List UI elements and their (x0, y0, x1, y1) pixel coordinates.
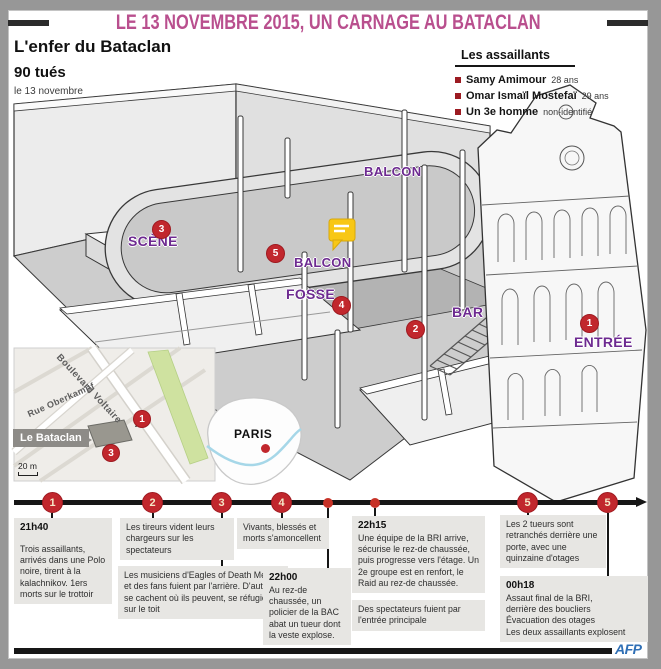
timeline-event-21h40: 21h40 Trois assaillants, arrivés dans un… (14, 518, 112, 604)
banner-rule-right (607, 20, 648, 26)
timeline-arrow-icon (636, 497, 647, 507)
venue-marker-entree: 1 (580, 314, 599, 333)
death-toll-date: le 13 novembre (14, 86, 83, 97)
title-banner: LE 13 NOVEMBRE 2015, UN CARNAGE AU BATAC… (8, 10, 648, 36)
event-text: Une équipe de la BRI arrive, sécurise le… (358, 533, 479, 589)
content-layer: LE 13 NOVEMBRE 2015, UN CARNAGE AU BATAC… (0, 0, 661, 669)
map-marker-entree: 1 (133, 410, 151, 428)
timeline-point-4: 4 (271, 492, 292, 513)
bullet-square-icon (455, 109, 461, 115)
timeline-event-22h15: 22h15 Une équipe de la BRI arrive, sécur… (352, 516, 485, 593)
assailant-item: Un 3e homme non-identifié (455, 106, 650, 118)
timeline-event-vivants: Vivants, blessés et morts s'amoncellent (237, 518, 329, 549)
timeline-point-5a: 5 (517, 492, 538, 513)
timeline-point-2: 2 (142, 492, 163, 513)
label-balcon-top: BALCON (364, 164, 421, 179)
assailant-item: Samy Amimour 28 ans (455, 74, 650, 86)
venue-marker-bar: 2 (406, 320, 425, 339)
event-text: Vivants, blessés et morts s'amoncellent (243, 522, 323, 545)
assailant-name: Samy Amimour (466, 74, 546, 86)
bataclan-label: Le Bataclan (13, 429, 89, 447)
label-bar: BAR (452, 304, 483, 320)
assailant-name: Un 3e homme (466, 106, 538, 118)
timeline-point-3: 3 (211, 492, 232, 513)
timeline-event-tireurs: Les tireurs vident leurs chargeurs sur l… (120, 518, 234, 560)
bottom-rule (14, 648, 612, 654)
paris-label: PARIS (234, 427, 272, 441)
page-title: LE 13 NOVEMBRE 2015, UN CARNAGE AU BATAC… (116, 11, 541, 35)
bullet-square-icon (455, 77, 461, 83)
event-text: Trois assaillants, arrivés dans une Polo… (20, 544, 106, 600)
timeline-dot-22h00 (323, 498, 333, 508)
assailant-detail: non-identifié (543, 107, 592, 117)
timeline-point-1: 1 (42, 492, 63, 513)
event-time: 22h15 (358, 520, 479, 533)
map-scale-bar (18, 472, 38, 476)
map-scale-label: 20 m (18, 461, 37, 471)
map-marker-scene: 3 (102, 444, 120, 462)
timeline-event-00h18: 00h18 Assaut final de la BRI, derrière d… (500, 576, 648, 642)
bullet-square-icon (455, 93, 461, 99)
event-text: Les 2 tueurs sont retranchés derrière un… (506, 519, 600, 564)
event-text: Au rez-de chaussée, un policier de la BA… (269, 585, 345, 641)
timeline-dot-22h15 (370, 498, 380, 508)
death-toll: 90 tués (14, 64, 66, 81)
facade (478, 85, 646, 502)
paris-location-dot (261, 444, 270, 453)
assailants-rule (455, 65, 575, 67)
event-text: Des spectateurs fuient par l'entrée prin… (358, 604, 479, 627)
event-text: Assaut final de la BRI, derrière des bou… (506, 593, 642, 638)
assailant-item: Omar Ismaïl Mostefaï 29 ans (455, 90, 650, 102)
venue-marker-fosse: 4 (332, 296, 351, 315)
paris-outline (207, 398, 301, 484)
venue-marker-scene: 3 (152, 220, 171, 239)
assailants-heading: Les assaillants (461, 48, 650, 62)
event-time: 21h40 (20, 522, 106, 535)
assailant-name: Omar Ismaïl Mostefaï (466, 90, 577, 102)
timeline-event-spectateurs: Des spectateurs fuient par l'entrée prin… (352, 600, 485, 631)
event-text: Les musiciens d'Eagles of Death Metal et… (124, 570, 282, 615)
timeline-connector (607, 513, 609, 576)
label-balcon: BALCON (294, 255, 351, 270)
label-fosse: FOSSE (286, 286, 335, 302)
afp-logo: AFP (615, 641, 642, 657)
assailant-detail: 28 ans (551, 75, 578, 85)
banner-rule-left (8, 20, 49, 26)
label-entree: ENTRÉE (574, 334, 633, 350)
event-text: Les tireurs vident leurs chargeurs sur l… (126, 522, 228, 556)
timeline-point-5b: 5 (597, 492, 618, 513)
venue-marker-balcon: 5 (266, 244, 285, 263)
assailant-detail: 29 ans (582, 91, 609, 101)
event-time: 00h18 (506, 580, 642, 593)
timeline-event-22h00: 22h00 Au rez-de chaussée, un policier de… (263, 568, 351, 645)
timeline-connector (374, 508, 376, 516)
assailants-panel: Les assaillants Samy Amimour 28 ans Omar… (455, 48, 650, 122)
event-time: 22h00 (269, 572, 345, 585)
label-scene: SCÈNE (128, 233, 178, 249)
timeline-event-retranches: Les 2 tueurs sont retranchés derrière un… (500, 515, 606, 568)
subtitle: L'enfer du Bataclan (14, 37, 171, 57)
